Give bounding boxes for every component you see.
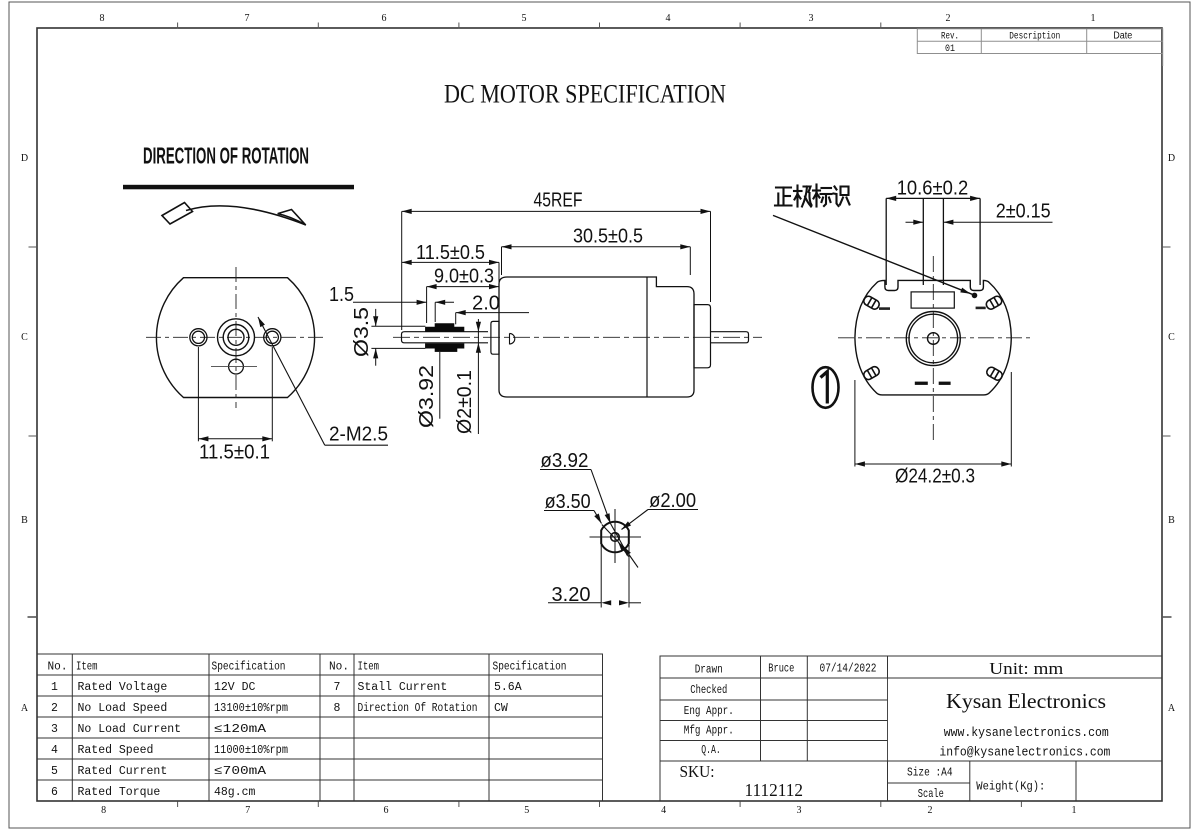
svg-text:Weight(Kg):: Weight(Kg): xyxy=(976,780,1045,794)
svg-text:4: 4 xyxy=(661,805,666,816)
svg-text:Checked: Checked xyxy=(690,684,727,697)
svg-text:Size :A4: Size :A4 xyxy=(907,766,953,780)
svg-text:7: 7 xyxy=(245,13,250,24)
svg-text:Rated Current: Rated Current xyxy=(78,765,168,778)
svg-text:DC MOTOR SPECIFICATION: DC MOTOR SPECIFICATION xyxy=(444,80,726,109)
svg-text:2-M2.5: 2-M2.5 xyxy=(329,424,388,446)
svg-text:Bruce: Bruce xyxy=(768,663,794,676)
svg-text:8: 8 xyxy=(100,13,105,24)
svg-text:C: C xyxy=(1168,332,1175,343)
svg-text:≤700mA: ≤700mA xyxy=(214,765,266,778)
svg-text:Stall Current: Stall Current xyxy=(358,681,448,694)
svg-text:5.6A: 5.6A xyxy=(494,681,522,694)
svg-text:30.5±0.5: 30.5±0.5 xyxy=(573,226,643,248)
svg-text:Rated Voltage: Rated Voltage xyxy=(78,681,168,694)
svg-text:SKU:: SKU: xyxy=(680,762,715,781)
svg-text:5: 5 xyxy=(51,765,58,778)
svg-text:1.5: 1.5 xyxy=(329,284,354,306)
svg-text:ø3.50: ø3.50 xyxy=(545,491,591,513)
svg-text:1: 1 xyxy=(1091,13,1096,24)
svg-text:Ø24.2±0.3: Ø24.2±0.3 xyxy=(895,466,975,488)
svg-text:No.: No. xyxy=(48,661,68,674)
svg-text:3: 3 xyxy=(809,13,814,24)
svg-text:2: 2 xyxy=(51,702,58,715)
svg-text:2±0.15: 2±0.15 xyxy=(996,200,1051,222)
svg-text:2: 2 xyxy=(946,13,951,24)
svg-text:Ø2±0.1: Ø2±0.1 xyxy=(454,370,476,434)
svg-text:8: 8 xyxy=(334,702,341,715)
svg-text:2.0: 2.0 xyxy=(472,293,500,315)
svg-text:12V DC: 12V DC xyxy=(214,681,256,694)
svg-text:Direction Of Rotation: Direction Of Rotation xyxy=(358,702,478,715)
svg-text:info@kysanelectronics.com: info@kysanelectronics.com xyxy=(939,745,1110,760)
svg-text:Specification: Specification xyxy=(212,661,286,674)
svg-text:Rated Torque: Rated Torque xyxy=(78,786,161,799)
svg-text:Rated Speed: Rated Speed xyxy=(78,744,154,757)
svg-text:11.5±0.5: 11.5±0.5 xyxy=(416,242,485,264)
svg-text:Date: Date xyxy=(1113,30,1132,41)
svg-text:11000±10%rpm: 11000±10%rpm xyxy=(214,744,288,757)
svg-text:CW: CW xyxy=(494,702,508,715)
svg-text:4: 4 xyxy=(666,13,671,24)
svg-text:3: 3 xyxy=(797,805,802,816)
svg-text:07/14/2022: 07/14/2022 xyxy=(820,663,877,676)
svg-text:Unit: mm: Unit: mm xyxy=(989,659,1063,678)
svg-text:Item: Item xyxy=(358,661,380,674)
svg-text:Ø3.5: Ø3.5 xyxy=(351,307,373,357)
svg-text:Specification: Specification xyxy=(493,661,567,674)
svg-text:7: 7 xyxy=(245,805,250,816)
svg-text:D: D xyxy=(1168,153,1175,164)
svg-text:No Load Speed: No Load Speed xyxy=(78,702,168,715)
svg-text:Ø3.92: Ø3.92 xyxy=(416,365,438,428)
svg-text:A: A xyxy=(21,703,29,714)
svg-text:13100±10%rpm: 13100±10%rpm xyxy=(214,702,288,715)
svg-text:Mfg Appr.: Mfg Appr. xyxy=(684,725,734,738)
svg-text:1: 1 xyxy=(1072,805,1077,816)
svg-text:7: 7 xyxy=(334,681,341,694)
svg-text:48g.cm: 48g.cm xyxy=(214,786,256,799)
svg-text:A: A xyxy=(1168,703,1176,714)
svg-text:ø2.00: ø2.00 xyxy=(649,490,696,512)
svg-text:Scale: Scale xyxy=(918,787,944,801)
svg-text:Item: Item xyxy=(76,661,98,674)
svg-text:Drawn: Drawn xyxy=(695,664,723,677)
svg-text:5: 5 xyxy=(522,13,527,24)
svg-text:No.: No. xyxy=(329,661,349,674)
svg-text:ø3.92: ø3.92 xyxy=(540,450,588,472)
svg-text:5: 5 xyxy=(524,805,529,816)
svg-text:Rev.: Rev. xyxy=(941,32,959,43)
svg-text:11.5±0.1: 11.5±0.1 xyxy=(199,442,270,464)
svg-text:D: D xyxy=(21,153,28,164)
svg-text:6: 6 xyxy=(382,13,387,24)
svg-text:Q.A.: Q.A. xyxy=(701,744,721,757)
svg-text:6: 6 xyxy=(384,805,389,816)
svg-text:C: C xyxy=(21,332,28,343)
svg-text:3: 3 xyxy=(51,723,58,736)
svg-text:1112112: 1112112 xyxy=(745,780,804,800)
svg-text:8: 8 xyxy=(101,805,106,816)
svg-text:3.20: 3.20 xyxy=(552,584,591,606)
svg-text:B: B xyxy=(1168,515,1175,526)
svg-text:45REF: 45REF xyxy=(534,190,583,212)
svg-text:1: 1 xyxy=(51,681,58,694)
svg-text:Kysan Electronics: Kysan Electronics xyxy=(946,689,1106,713)
svg-text:2: 2 xyxy=(928,805,933,816)
svg-text:≤120mA: ≤120mA xyxy=(214,723,266,736)
svg-text:9.0±0.3: 9.0±0.3 xyxy=(434,266,494,288)
svg-text:4: 4 xyxy=(51,744,58,757)
svg-text:Eng Appr.: Eng Appr. xyxy=(684,705,734,718)
svg-text:Description: Description xyxy=(1009,30,1060,42)
svg-text:DIRECTION OF ROTATION: DIRECTION OF ROTATION xyxy=(143,143,309,169)
svg-text:10.6±0.2: 10.6±0.2 xyxy=(897,177,969,199)
svg-text:www.kysanelectronics.com: www.kysanelectronics.com xyxy=(944,725,1109,740)
svg-text:No Load Current: No Load Current xyxy=(78,723,182,736)
svg-text:B: B xyxy=(21,515,28,526)
svg-text:01: 01 xyxy=(945,44,955,55)
svg-text:6: 6 xyxy=(51,786,58,799)
